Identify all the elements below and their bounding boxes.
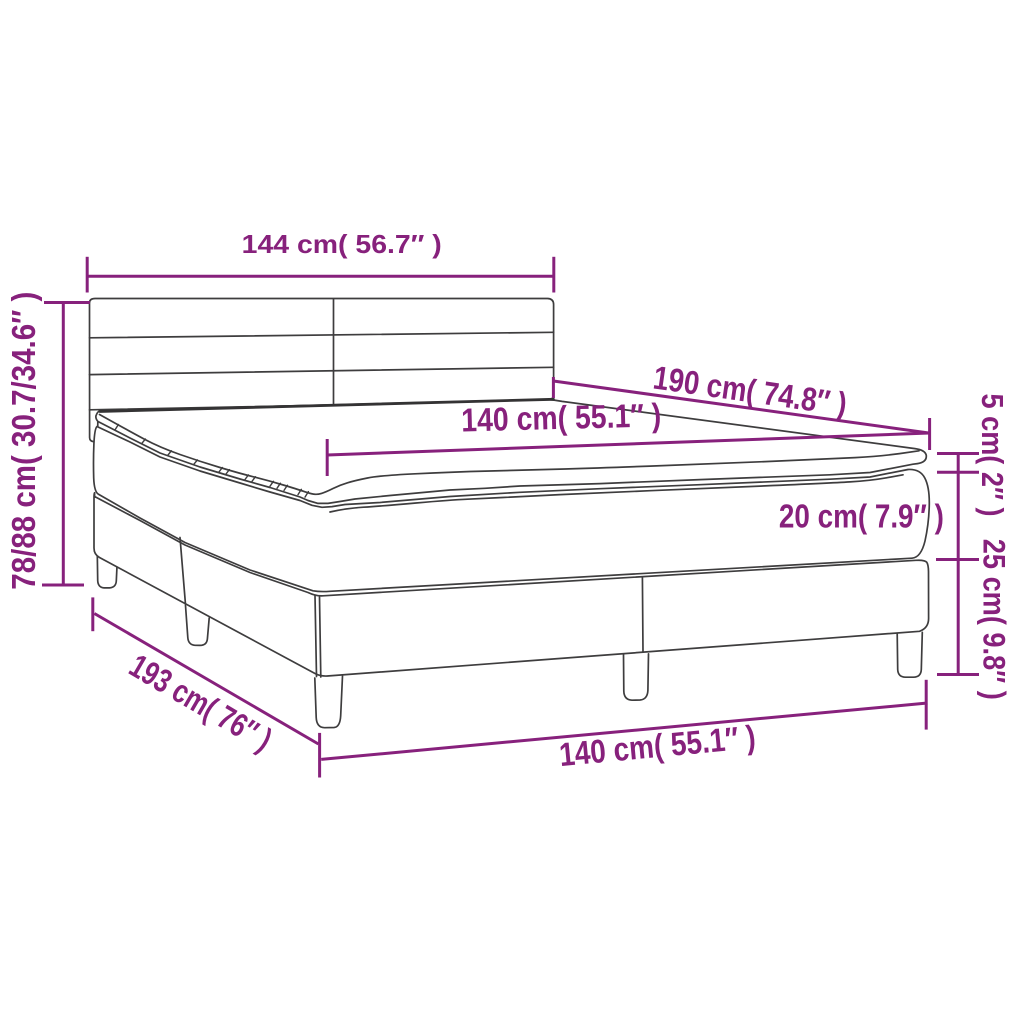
svg-text:140 cm( 55.1″ ): 140 cm( 55.1″ ) <box>558 718 758 773</box>
svg-text:78/88 cm( 30.7/34.6″ ): 78/88 cm( 30.7/34.6″ ) <box>5 292 42 590</box>
svg-text:25 cm( 9.8″ ): 25 cm( 9.8″ ) <box>977 539 1013 700</box>
svg-text:20 cm( 7.9″ ): 20 cm( 7.9″ ) <box>779 498 944 535</box>
svg-text:140 cm( 55.1″ ): 140 cm( 55.1″ ) <box>461 396 662 438</box>
svg-text:144 cm( 56.7″ ): 144 cm( 56.7″ ) <box>242 229 442 259</box>
svg-text:193 cm( 76″ ): 193 cm( 76″ ) <box>123 647 278 758</box>
svg-text:190 cm( 74.8″ ): 190 cm( 74.8″ ) <box>651 359 849 423</box>
svg-text:5 cm( 2″ ): 5 cm( 2″ ) <box>975 394 1010 517</box>
